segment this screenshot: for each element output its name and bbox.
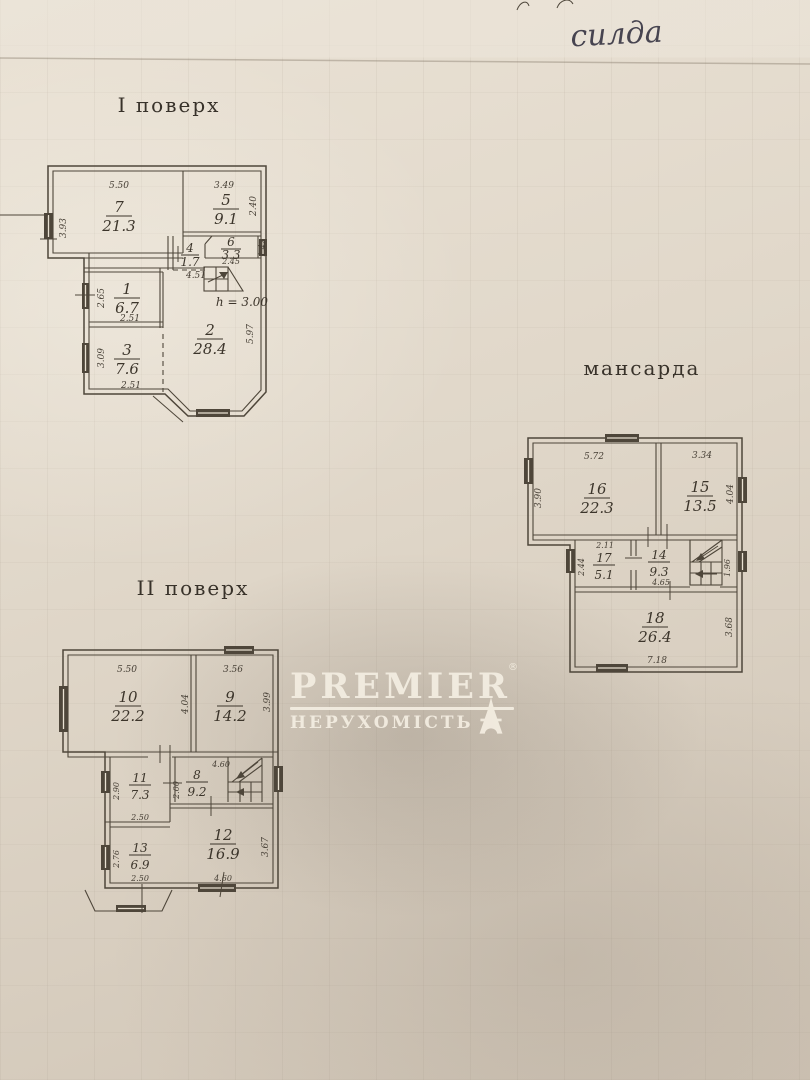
room-12-number: 12 xyxy=(213,826,232,844)
room-label: 7 21.3 5 9.1 4 1.7 6 3.3 1 6.7 2 28.4 3 … xyxy=(101,191,241,378)
room-10-area: 22.2 xyxy=(110,707,144,725)
watermark-subtitle-text: НЕРУХОМІСТЬ xyxy=(290,713,474,733)
room-5-number: 5 xyxy=(221,191,231,209)
dim-h1: 2.65 xyxy=(97,288,107,309)
room-16-number: 16 xyxy=(587,480,607,498)
room-13-number: 13 xyxy=(132,841,148,855)
room-18-number: 18 xyxy=(645,609,664,627)
dim-w8: 4.60 xyxy=(211,760,230,769)
room-1-number: 1 xyxy=(122,280,132,298)
room-2-number: 2 xyxy=(204,321,215,339)
dim-h12: 3.67 xyxy=(261,837,271,857)
dim-w4: 4.51 xyxy=(185,271,206,281)
dim-w7: 5.50 xyxy=(109,181,129,191)
stairs-icon xyxy=(228,758,262,802)
room-4-number: 4 xyxy=(185,241,194,255)
dim-hs: 1.96 xyxy=(723,559,732,577)
dim-w17: 2.11 xyxy=(595,541,614,550)
room-8-number: 8 xyxy=(193,768,201,782)
dim-w9: 3.56 xyxy=(223,665,243,675)
room-11-area: 7.3 xyxy=(130,788,149,802)
room-5-area: 9.1 xyxy=(214,210,238,228)
dim-h13: 2.76 xyxy=(112,850,121,869)
floor1-height-note: h = 3.00 xyxy=(216,295,268,309)
room-9-number: 9 xyxy=(225,688,235,706)
handwriting-text: силда xyxy=(570,15,664,55)
dim-h5: 2.40 xyxy=(249,196,259,217)
floor1-title: I поверх xyxy=(118,93,221,117)
room-11-number: 11 xyxy=(132,771,147,785)
room-14-area: 9.3 xyxy=(649,565,668,579)
dim-h17: 2.44 xyxy=(577,558,586,577)
dim-h7: 3.93 xyxy=(59,218,69,238)
room-10-number: 10 xyxy=(118,688,138,706)
dim-w12: 4.60 xyxy=(213,874,232,883)
plan-floor1: I поверх h = 3.00 xyxy=(0,93,268,422)
room-18-area: 26.4 xyxy=(637,628,671,646)
handwriting-note: силда xyxy=(517,0,663,54)
room-6-number: 6 xyxy=(227,235,235,249)
mansard-title: мансарда xyxy=(584,356,701,380)
room-3-number: 3 xyxy=(122,341,132,359)
room-13-area: 6.9 xyxy=(130,858,149,872)
dim-w16: 5.72 xyxy=(584,452,604,462)
room-15-area: 13.5 xyxy=(683,497,716,515)
dim-h11: 2.90 xyxy=(112,782,121,801)
registered-trademark-icon: ® xyxy=(508,663,518,673)
room-16-area: 22.3 xyxy=(579,499,613,517)
sheet-edge-line xyxy=(0,58,810,64)
dim-w3: 2.51 xyxy=(120,381,141,391)
room-15-number: 15 xyxy=(690,478,709,496)
room-12-area: 16.9 xyxy=(206,845,240,863)
plan-floor2: II поверх xyxy=(59,576,283,913)
room-17-area: 5.1 xyxy=(594,568,613,582)
dim-h18: 3.68 xyxy=(725,617,735,637)
room-9-area: 14.2 xyxy=(213,707,246,725)
room-7-area: 21.3 xyxy=(101,217,135,235)
dim-w5: 3.49 xyxy=(214,181,234,191)
dim-w11: 2.50 xyxy=(130,813,149,822)
dim-w1: 2.51 xyxy=(119,314,140,324)
room-label: 10 22.2 9 14.2 11 7.3 8 9.2 13 6.9 12 16… xyxy=(110,688,246,872)
room-4-area: 1.7 xyxy=(180,255,199,269)
premier-watermark: PREMIER ® НЕРУХОМІСТЬ xyxy=(290,669,514,733)
dim-h2: 5.97 xyxy=(246,324,256,344)
dim-w18: 7.18 xyxy=(647,656,667,666)
room-14-number: 14 xyxy=(651,548,666,562)
floor2-title: II поверх xyxy=(137,576,250,600)
dim-h10: 4.04 xyxy=(181,694,191,715)
eiffel-tower-icon xyxy=(476,695,506,737)
room-3-area: 7.6 xyxy=(115,360,139,378)
stairs-icon xyxy=(690,540,722,585)
room-7-number: 7 xyxy=(114,198,124,216)
dim-w14: 4.65 xyxy=(651,578,670,587)
floor-plan-drawing: силда I поверх h = 3.00 xyxy=(0,0,810,1080)
room-8-area: 9.2 xyxy=(187,785,206,799)
dim-h6: 1.42 xyxy=(258,239,267,257)
plan-mansard: мансарда 16 xyxy=(524,356,747,672)
room-2-area: 28.4 xyxy=(192,340,226,358)
dim-h15: 4.04 xyxy=(726,484,736,505)
dim-w13: 2.50 xyxy=(130,874,149,883)
dim-w6: 2.45 xyxy=(221,257,240,266)
dim-h16: 3.90 xyxy=(534,488,544,508)
window-marker xyxy=(59,646,283,912)
dim-w15: 3.34 xyxy=(692,451,712,461)
dim-w10: 5.50 xyxy=(117,665,137,675)
dim-h8: 2.00 xyxy=(172,781,181,800)
room-17-number: 17 xyxy=(596,551,612,565)
dim-h3: 3.09 xyxy=(97,348,107,368)
dim-h9: 3.99 xyxy=(263,692,273,712)
stairs-icon xyxy=(204,267,243,291)
